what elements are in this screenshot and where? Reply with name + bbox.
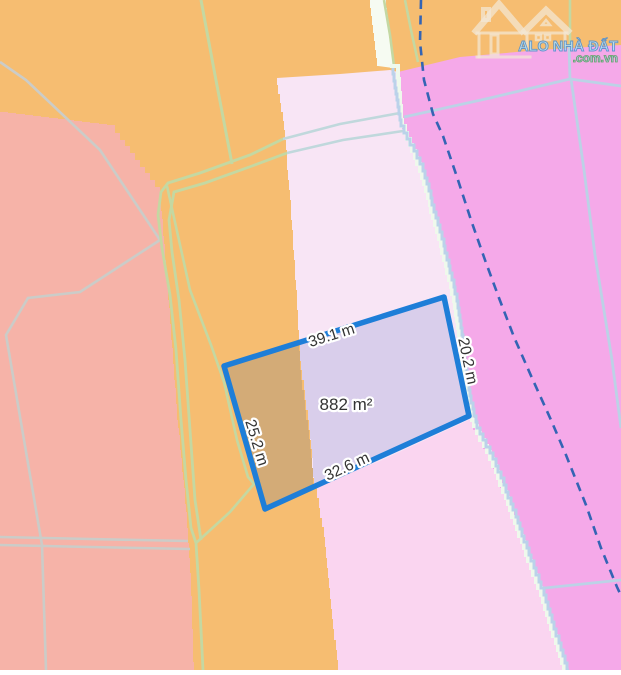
svg-text:882 m²: 882 m² xyxy=(320,395,373,414)
svg-text:.com.vn: .com.vn xyxy=(573,51,618,65)
